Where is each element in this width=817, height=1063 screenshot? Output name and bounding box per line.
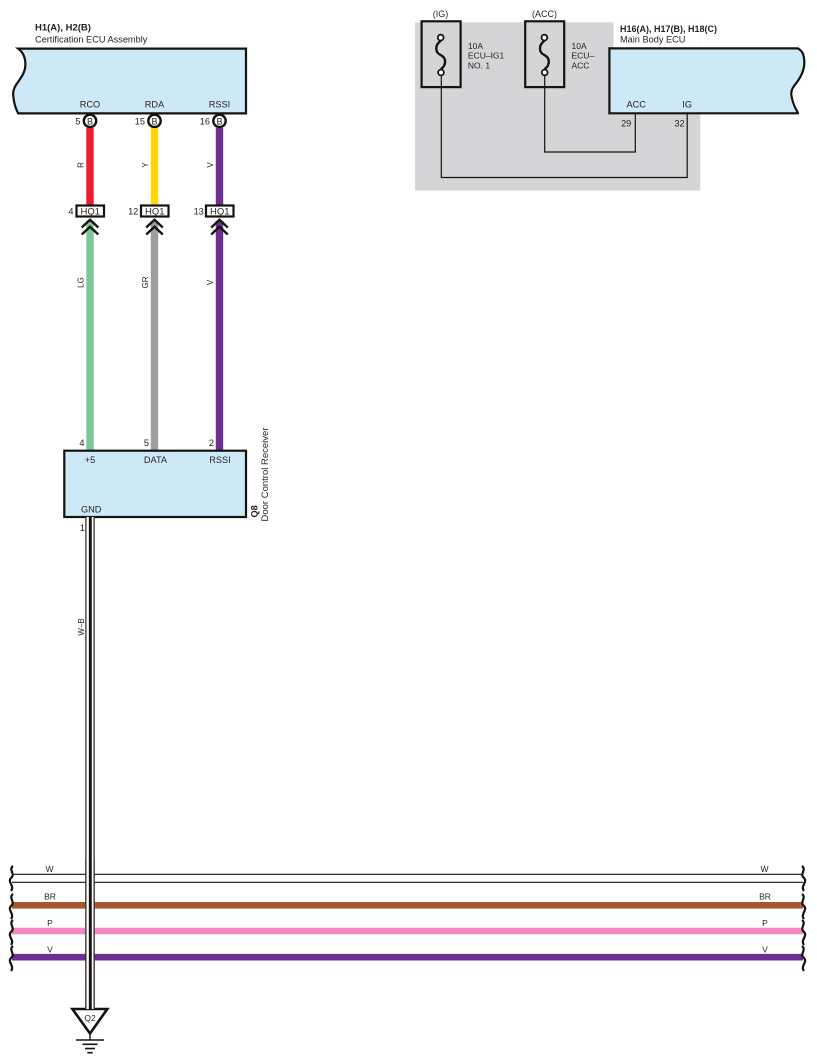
svg-text:RCO: RCO: [80, 100, 100, 110]
svg-text:10A: 10A: [572, 41, 587, 51]
svg-text:GND: GND: [81, 505, 102, 515]
svg-text:Q2: Q2: [84, 1013, 96, 1023]
svg-text:32: 32: [674, 119, 684, 129]
svg-text:GR: GR: [141, 276, 150, 288]
svg-text:1: 1: [80, 523, 85, 533]
svg-text:2: 2: [209, 438, 214, 448]
svg-text:Y: Y: [141, 162, 150, 168]
svg-text:29: 29: [621, 119, 631, 129]
svg-text:P: P: [47, 918, 53, 928]
svg-text:13: 13: [194, 207, 204, 217]
svg-text:V: V: [206, 279, 215, 285]
svg-text:H1(A), H2(B): H1(A), H2(B): [35, 23, 91, 34]
svg-text:NO. 1: NO. 1: [468, 60, 490, 70]
svg-text:Certification ECU Assembly: Certification ECU Assembly: [35, 35, 148, 45]
svg-text:ECU–IG1: ECU–IG1: [468, 51, 505, 61]
svg-text:V: V: [206, 162, 215, 168]
svg-text:Main Body ECU: Main Body ECU: [620, 34, 685, 44]
svg-text:5: 5: [144, 438, 149, 448]
svg-text:R: R: [77, 162, 86, 168]
svg-text:+5: +5: [85, 455, 95, 465]
svg-text:5: 5: [75, 117, 80, 127]
svg-text:Door Control Receiver: Door Control Receiver: [260, 428, 271, 522]
svg-text:BR: BR: [759, 892, 771, 902]
svg-text:BR: BR: [44, 892, 56, 902]
svg-text:W: W: [45, 864, 53, 874]
svg-text:B: B: [87, 116, 93, 126]
svg-text:IG: IG: [682, 100, 692, 110]
svg-text:LG: LG: [77, 277, 86, 288]
svg-text:RSSI: RSSI: [209, 100, 230, 110]
svg-text:HQ1: HQ1: [210, 207, 230, 218]
svg-text:ACC: ACC: [626, 100, 646, 110]
svg-text:4: 4: [79, 438, 84, 448]
svg-text:W: W: [760, 864, 768, 874]
svg-text:V: V: [762, 944, 768, 954]
svg-text:P: P: [762, 918, 768, 928]
svg-text:DATA: DATA: [144, 455, 168, 465]
svg-text:H16(A), H17(B), H18(C): H16(A), H17(B), H18(C): [620, 24, 717, 34]
svg-text:HQ1: HQ1: [81, 207, 101, 218]
svg-text:ACC: ACC: [572, 60, 590, 70]
svg-text:Q8: Q8: [250, 505, 260, 517]
svg-text:4: 4: [68, 207, 73, 217]
svg-text:W–B: W–B: [77, 618, 86, 635]
svg-text:16: 16: [200, 117, 210, 127]
svg-text:10A: 10A: [468, 41, 483, 51]
svg-text:(ACC): (ACC): [532, 9, 557, 19]
svg-text:B: B: [151, 116, 157, 126]
svg-text:12: 12: [128, 207, 138, 217]
svg-text:HQ1: HQ1: [145, 207, 165, 218]
svg-text:B: B: [216, 116, 222, 126]
svg-text:15: 15: [135, 117, 145, 127]
svg-text:RDA: RDA: [145, 100, 165, 110]
svg-text:RSSI: RSSI: [209, 455, 230, 465]
svg-text:(IG): (IG): [433, 9, 449, 19]
svg-text:V: V: [47, 944, 53, 954]
svg-text:ECU–: ECU–: [572, 51, 595, 61]
